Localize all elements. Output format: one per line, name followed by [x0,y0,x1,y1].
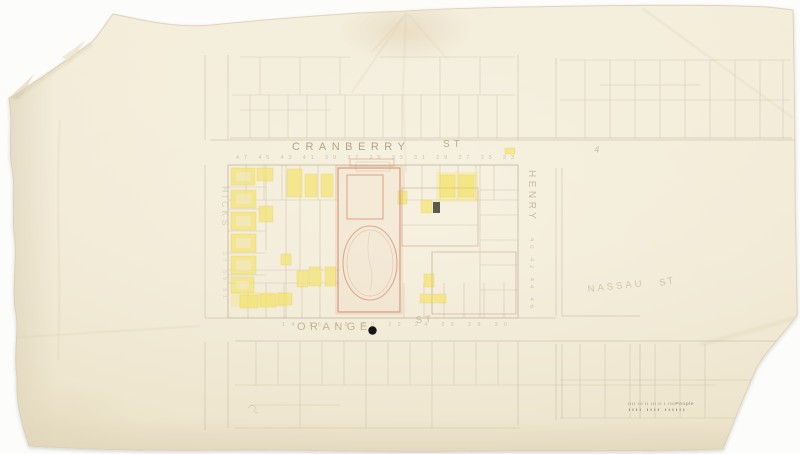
yellow-lot [259,206,273,222]
yellow-lot [305,174,317,197]
yellow-lot [309,267,321,286]
yellow-lot [421,200,432,213]
yellow-lot [240,295,258,308]
yellow-lot [459,175,474,197]
cranberry-street-label: CRANBERRY [292,141,410,153]
cranberry-street-suffix: ST [443,139,464,150]
stamp-line-1: ıııı ııı ıı ııı ıı ı ııııPeople [628,401,694,406]
yellow-lot [260,294,276,307]
scanned-map-sheet: CRANBERRY ST ORANGE ST NASSAU ST HENRY H… [0,0,800,454]
map-canvas: CRANBERRY ST ORANGE ST NASSAU ST HENRY H… [0,0,800,454]
yellow-lot [257,168,273,181]
stamp-line-2: ıııı ıııı ıııııı [628,407,686,412]
yellow-lot [321,174,333,197]
yellow-lot [440,175,455,197]
archive-stamp: ıııı ııı ıı ııı ıı ı ııııPeople ıııı ııı… [628,401,694,412]
yellow-lot [424,274,434,287]
yellow-lot [278,293,292,305]
yellow-lot [297,271,308,287]
yellow-lot [420,294,446,303]
hicks-street-label: HICKS [220,186,230,229]
dark-pencil-mark [433,202,440,213]
yellow-lot [287,169,302,197]
yellow-lot [325,267,336,286]
yellow-lot [281,254,291,265]
henry-street-label: HENRY [526,170,537,222]
yellow-lot [505,148,515,154]
